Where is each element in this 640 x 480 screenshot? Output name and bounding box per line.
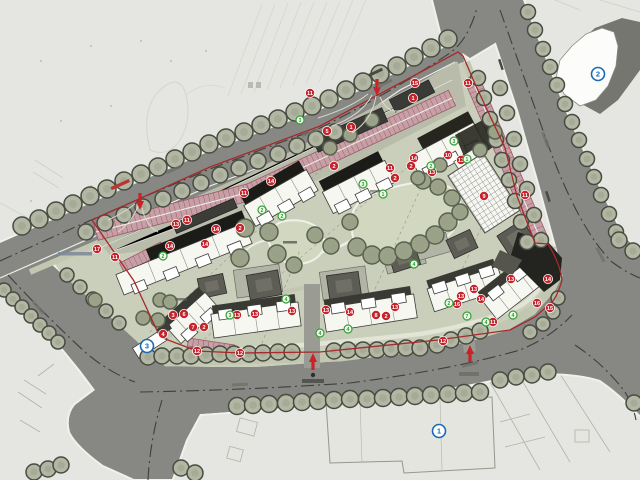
svg-text:4: 4 xyxy=(347,327,350,333)
svg-text:1: 1 xyxy=(382,192,385,198)
svg-text:11: 11 xyxy=(184,218,190,224)
svg-text:11: 11 xyxy=(112,255,118,261)
svg-text:14: 14 xyxy=(478,297,485,303)
svg-text:3: 3 xyxy=(229,313,232,319)
svg-text:14: 14 xyxy=(213,227,220,233)
svg-text:13: 13 xyxy=(323,308,329,314)
svg-text:1: 1 xyxy=(466,157,469,163)
svg-text:10: 10 xyxy=(445,153,451,159)
svg-text:11: 11 xyxy=(241,191,247,197)
svg-text:16: 16 xyxy=(454,302,460,308)
svg-text:13: 13 xyxy=(508,277,514,283)
svg-text:3: 3 xyxy=(299,118,302,124)
svg-text:13: 13 xyxy=(392,305,398,311)
svg-text:4: 4 xyxy=(319,331,322,337)
svg-text:1: 1 xyxy=(411,96,414,102)
svg-text:1: 1 xyxy=(437,427,441,436)
svg-text:2: 2 xyxy=(596,70,600,79)
svg-text:2: 2 xyxy=(430,164,433,170)
svg-text:17: 17 xyxy=(94,247,100,253)
svg-text:14: 14 xyxy=(268,179,275,185)
svg-text:8: 8 xyxy=(374,313,377,319)
svg-text:14: 14 xyxy=(202,242,209,248)
svg-text:4: 4 xyxy=(413,262,416,268)
svg-text:13: 13 xyxy=(458,294,464,300)
svg-text:2: 2 xyxy=(281,214,284,220)
svg-text:15: 15 xyxy=(412,81,418,87)
svg-text:14: 14 xyxy=(167,244,174,250)
svg-text:3: 3 xyxy=(362,182,365,188)
svg-text:3: 3 xyxy=(171,313,174,319)
svg-text:11: 11 xyxy=(387,166,393,172)
svg-text:5: 5 xyxy=(325,129,328,135)
svg-text:14: 14 xyxy=(347,310,354,316)
svg-text:2: 2 xyxy=(162,254,165,260)
svg-text:15: 15 xyxy=(547,306,553,312)
svg-text:13: 13 xyxy=(234,313,240,319)
svg-text:13: 13 xyxy=(173,222,179,228)
svg-text:2: 2 xyxy=(393,176,396,182)
svg-text:11: 11 xyxy=(490,320,496,326)
svg-text:14: 14 xyxy=(545,277,552,283)
svg-text:3: 3 xyxy=(145,342,149,351)
svg-text:6: 6 xyxy=(182,312,185,318)
svg-text:2: 2 xyxy=(384,314,387,320)
svg-text:4: 4 xyxy=(485,320,488,326)
svg-text:11: 11 xyxy=(522,193,528,199)
svg-text:2: 2 xyxy=(409,164,412,170)
svg-text:11: 11 xyxy=(307,91,313,97)
svg-text:2: 2 xyxy=(261,208,264,214)
svg-text:14: 14 xyxy=(411,156,418,162)
svg-text:3: 3 xyxy=(453,139,456,145)
svg-text:11: 11 xyxy=(465,81,471,87)
svg-text:4: 4 xyxy=(512,313,515,319)
svg-text:2: 2 xyxy=(202,325,205,331)
svg-text:1: 1 xyxy=(349,125,352,131)
svg-text:16: 16 xyxy=(534,301,540,307)
svg-text:12: 12 xyxy=(237,351,243,357)
svg-text:13: 13 xyxy=(471,287,477,293)
svg-text:13: 13 xyxy=(252,312,258,318)
svg-text:7: 7 xyxy=(466,314,469,320)
svg-text:13: 13 xyxy=(289,309,295,315)
svg-text:4: 4 xyxy=(285,297,288,303)
svg-text:2: 2 xyxy=(238,226,241,232)
svg-text:7: 7 xyxy=(191,325,194,331)
svg-text:13: 13 xyxy=(429,170,435,176)
svg-text:2: 2 xyxy=(448,301,451,307)
svg-text:12: 12 xyxy=(194,349,200,355)
svg-text:9: 9 xyxy=(482,194,485,200)
svg-text:2: 2 xyxy=(332,164,335,170)
svg-text:12: 12 xyxy=(440,339,446,345)
